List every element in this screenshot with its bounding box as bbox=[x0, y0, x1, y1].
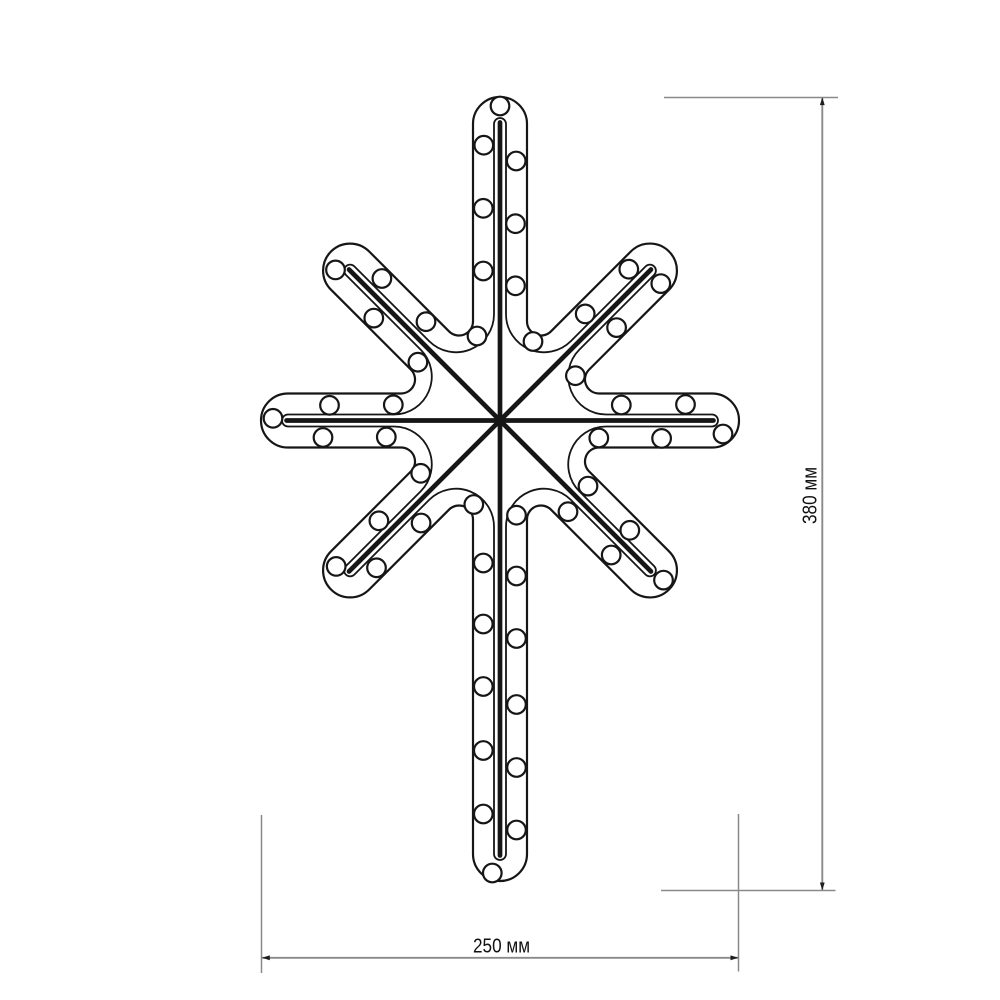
svg-text:380 мм: 380 мм bbox=[799, 467, 821, 524]
svg-text:250 мм: 250 мм bbox=[473, 936, 530, 958]
